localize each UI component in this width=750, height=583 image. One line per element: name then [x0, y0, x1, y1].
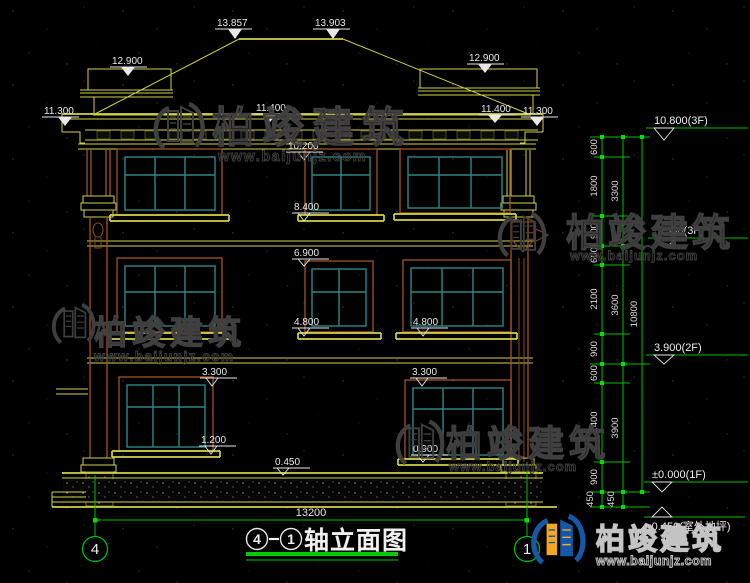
watermark-url: www.baijunjz.com — [217, 149, 367, 165]
label-text: 13.903 — [315, 18, 346, 29]
title-axis-from: 4 — [253, 531, 261, 547]
marker-text: 3.900(2F) — [654, 342, 702, 354]
label-text: 0.450 — [275, 457, 300, 468]
elevation-drawing: 13.857 13.903 12.900 12.900 11.300 11.40… — [0, 0, 750, 583]
dim-value: 450 — [606, 491, 617, 507]
dimension-values-outer: 10800 — [629, 301, 640, 327]
title-text: 轴立面图 — [304, 526, 408, 555]
overall-dimension-value: 13200 — [296, 507, 327, 519]
watermark-url: www.baijunjz.com — [448, 459, 577, 474]
dim-value: 600 — [589, 139, 600, 155]
axis-number-left: 4 — [91, 541, 99, 558]
cad-elevation-screenshot: 13.857 13.903 12.900 12.900 11.300 11.40… — [0, 0, 750, 583]
label-text: 11.400 — [481, 104, 511, 115]
label-text: 4.800 — [413, 317, 438, 328]
dim-value: 3600 — [610, 294, 621, 315]
dim-value: 2100 — [589, 288, 600, 309]
marker-text: ±0.000(1F) — [652, 469, 706, 481]
dim-value: 900 — [589, 469, 600, 485]
dim-value: 600 — [589, 365, 600, 381]
title-underline-thick — [246, 552, 398, 556]
dim-value: 1800 — [589, 175, 600, 196]
label-text: 12.900 — [112, 56, 143, 67]
watermark-brand: 柏竣建筑 — [94, 314, 246, 351]
label-text: 3.300 — [202, 367, 227, 378]
plinth-stone-band — [63, 479, 542, 502]
label-text: 4.800 — [294, 317, 319, 328]
watermark-brand: 柏竣建筑 — [446, 423, 610, 464]
label-text: 3.300 — [412, 367, 437, 378]
watermark-brand: 柏竣建筑 — [596, 522, 724, 556]
dim-value: 3900 — [610, 417, 621, 438]
dim-value: 450 — [585, 491, 596, 507]
title-axis-to: 1 — [287, 531, 295, 547]
label-text: 13.857 — [217, 18, 248, 29]
label-text: 8.400 — [294, 202, 319, 213]
label-text: 1.200 — [201, 435, 226, 446]
label-text: 6.900 — [294, 248, 319, 259]
watermark-brand: 柏竣建筑 — [212, 104, 412, 151]
label-text: 11.300 — [44, 106, 74, 117]
watermark-url: www.baijunjz.com — [93, 349, 235, 364]
plinth — [52, 473, 557, 507]
marker-text: 10.800(3F) — [654, 115, 708, 127]
label-text: 12.900 — [469, 53, 500, 64]
dim-value: 900 — [589, 341, 600, 357]
dim-value: 10800 — [629, 301, 640, 327]
axis-number-right: 1 — [523, 541, 531, 558]
watermark-url: www.baijunjz.com — [595, 554, 712, 568]
dim-value: 3300 — [610, 180, 621, 201]
watermark-url: www.baijunjz.com — [569, 248, 698, 263]
label-text: 11.300 — [523, 106, 553, 117]
